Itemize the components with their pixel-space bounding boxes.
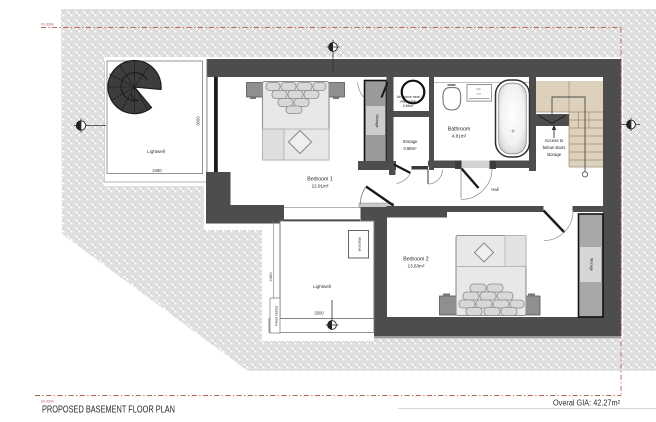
- svg-text:water tank: water tank: [400, 100, 416, 104]
- svg-text:00.000m: 00.000m: [41, 23, 54, 27]
- svg-text:Hall: Hall: [491, 187, 498, 192]
- svg-text:Overal GIA: 42.27m²: Overal GIA: 42.27m²: [553, 399, 620, 408]
- svg-text:12.91m²: 12.91m²: [312, 184, 329, 189]
- svg-text:Bedroom 1: Bedroom 1: [307, 177, 332, 183]
- svg-text:3000: 3000: [196, 116, 201, 126]
- svg-text:Storage: Storage: [590, 258, 594, 271]
- svg-text:Bedroom 2: Bedroom 2: [403, 257, 428, 263]
- svg-text:2480: 2480: [152, 168, 162, 173]
- svg-text:13.63m²: 13.63m²: [408, 264, 425, 269]
- svg-text:Lightwell: Lightwell: [313, 284, 331, 289]
- svg-text:Storage: Storage: [403, 139, 418, 144]
- svg-text:Lightwell: Lightwell: [147, 149, 165, 154]
- svg-text:below stairs: below stairs: [543, 145, 566, 150]
- svg-text:0.46m²: 0.46m²: [403, 104, 414, 108]
- svg-text:0.88m²: 0.88m²: [403, 146, 417, 151]
- svg-text:PROPOSED BASEMENT FLOOR PLAN: PROPOSED BASEMENT FLOOR PLAN: [42, 404, 175, 415]
- svg-text:4.81m²: 4.81m²: [452, 134, 467, 139]
- svg-text:Air source heat: Air source heat: [397, 95, 420, 99]
- svg-text:Fixed ladder: Fixed ladder: [275, 305, 279, 326]
- svg-text:Manhole: Manhole: [358, 237, 362, 251]
- svg-text:2500: 2500: [314, 311, 324, 316]
- svg-text:2460: 2460: [268, 272, 273, 282]
- svg-text:Access to: Access to: [545, 138, 564, 143]
- svg-text:Storage: Storage: [375, 114, 379, 127]
- svg-text:00.000m: 00.000m: [41, 400, 54, 404]
- svg-text:Bathroom: Bathroom: [448, 127, 471, 133]
- svg-text:storage: storage: [547, 152, 562, 157]
